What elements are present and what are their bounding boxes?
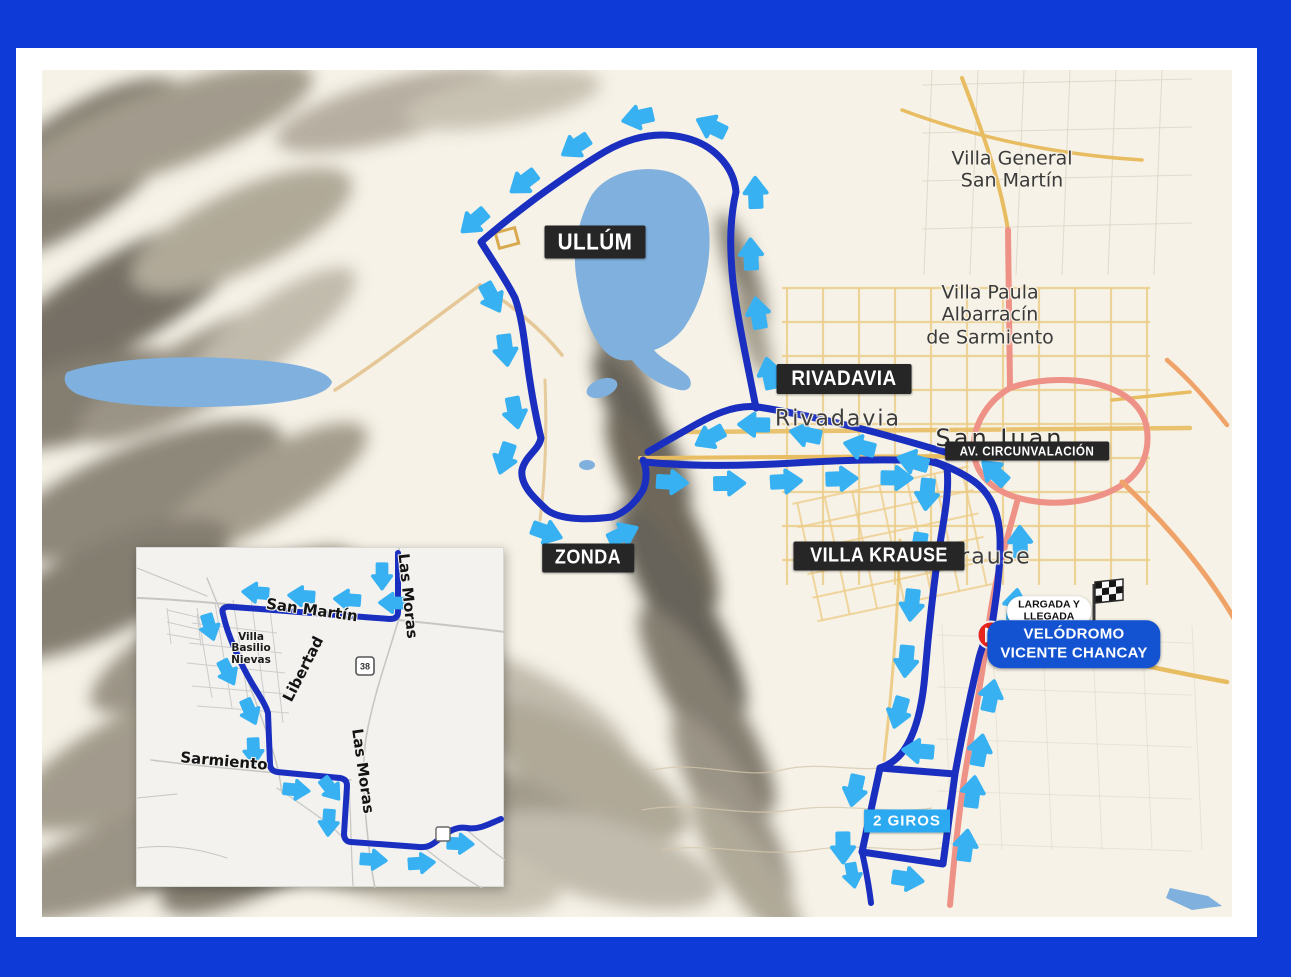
route-south-stub <box>862 852 871 903</box>
label-villa-paula-albarracin: Villa PaulaAlbarracínde Sarmiento <box>926 281 1054 348</box>
inset-label-villa-basilio-nievas: VillaBasilioNievas <box>231 632 271 666</box>
checkered-flag-icon <box>1095 579 1123 603</box>
badge-ullum: ULLÚM <box>545 226 646 259</box>
velodromo-pill: VELÓDROMOVICENTE CHANCAY <box>987 620 1160 668</box>
badge-zonda: ZONDA <box>542 544 634 573</box>
route-map: Villa GeneralSan Martín Villa PaulaAlbar… <box>42 70 1232 917</box>
label-rivadavia-town: Rivadavia <box>775 407 901 432</box>
svg-text:38: 38 <box>360 662 370 672</box>
giros-badge: 2 GIROS <box>864 810 950 833</box>
southeast-pond <box>1166 888 1222 910</box>
west-reservoir-arm <box>65 357 332 407</box>
inset-canvas: 38 <box>137 548 505 888</box>
label-villa-general-san-martin: Villa GeneralSan Martín <box>952 148 1073 193</box>
small-route-shield <box>436 827 450 841</box>
inset-street-map: 38 San Martín Las Moras Las Moras Libert… <box>136 547 504 887</box>
route-38-shield: 38 <box>356 657 374 675</box>
badge-villa-krause: VILLA KRAUSE <box>793 542 964 571</box>
badge-av-circunvalacion: AV. CIRCUNVALACIÓN <box>945 442 1109 461</box>
badge-rivadavia: RIVADAVIA <box>777 364 912 394</box>
race-map-page: { "badges": { "ullum": "ULLÚM", "zonda":… <box>0 0 1291 977</box>
map-white-panel: Villa GeneralSan Martín Villa PaulaAlbar… <box>16 48 1257 937</box>
